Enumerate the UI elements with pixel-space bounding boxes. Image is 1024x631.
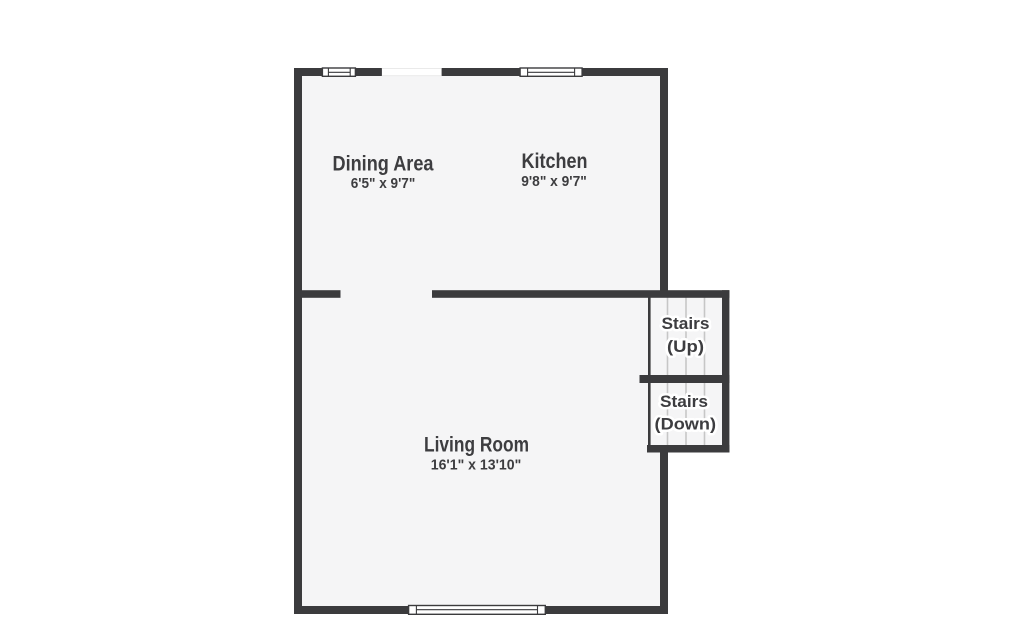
- svg-text:Dining Area: Dining Area: [333, 153, 434, 176]
- svg-text:6'5" x 9'7": 6'5" x 9'7": [351, 176, 416, 192]
- svg-text:Kitchen: Kitchen: [522, 150, 588, 173]
- svg-text:9'8" x 9'7": 9'8" x 9'7": [521, 174, 587, 190]
- svg-text:Living Room: Living Room: [424, 434, 529, 457]
- svg-text:(Up): (Up): [667, 338, 704, 356]
- svg-text:(Down): (Down): [655, 416, 717, 434]
- svg-text:Stairs: Stairs: [660, 393, 708, 411]
- svg-text:16'1" x 13'10": 16'1" x 13'10": [431, 458, 522, 474]
- svg-text:Stairs: Stairs: [662, 315, 710, 333]
